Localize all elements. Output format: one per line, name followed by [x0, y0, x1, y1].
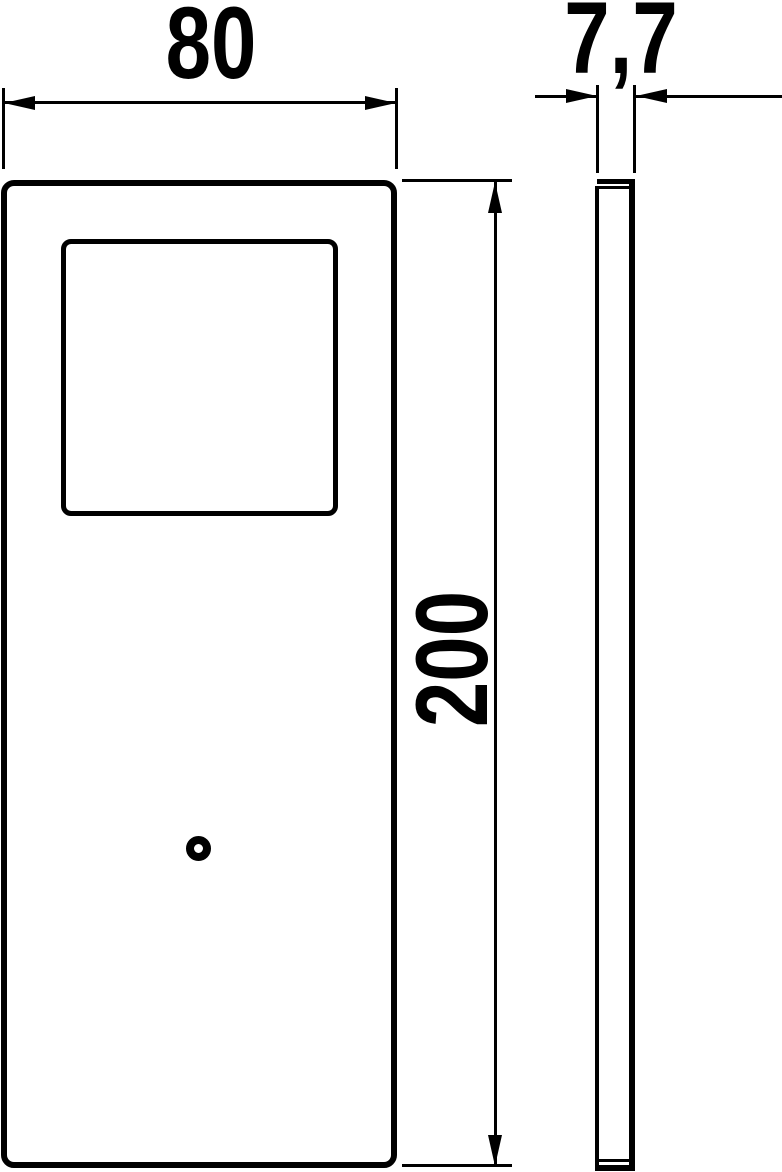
- width-dim-line: [4, 101, 396, 104]
- height-arrowhead-top: [488, 182, 502, 213]
- side-panel-bottom-cap: [595, 1165, 635, 1171]
- side-panel-bottom-edge: [595, 1159, 635, 1162]
- height-dim-label: 200: [401, 591, 503, 727]
- width-arrowhead-right: [365, 96, 396, 110]
- side-panel-left-edge: [595, 186, 599, 1166]
- side-panel-right-edge: [629, 179, 635, 1171]
- thickness-dim-label: 7,7: [564, 0, 677, 89]
- drawing-canvas: 80 7,7 200: [0, 0, 782, 1172]
- mounting-hole: [186, 836, 211, 861]
- width-dim-label: 80: [166, 0, 257, 94]
- width-arrowhead-left: [4, 96, 35, 110]
- display-window-outline: [61, 239, 338, 516]
- height-arrowhead-bottom: [488, 1135, 502, 1166]
